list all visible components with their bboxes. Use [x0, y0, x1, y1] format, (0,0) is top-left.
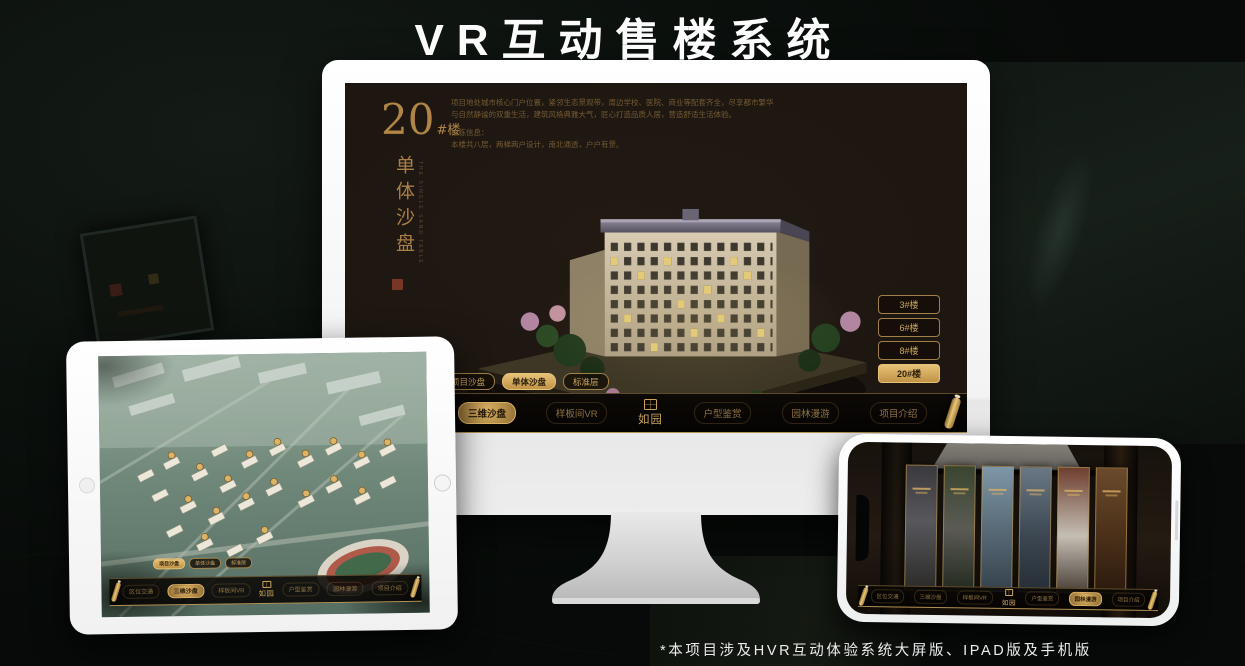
sandbox-tab-group: 项目沙盘 单体沙盘 标准层: [441, 373, 609, 390]
nav-item-project-intro[interactable]: 项目介绍: [371, 581, 408, 596]
phone-side-button: [1175, 500, 1179, 540]
footnote-text: *本项目涉及HVR互动体验系统大屏版、IPAD版及手机版: [660, 639, 1092, 660]
card-label-mark: [916, 492, 928, 494]
gallery-card-row: [904, 465, 1128, 594]
tab-project-sandbox[interactable]: 项目沙盘: [153, 558, 185, 569]
logo-text: 如园: [259, 589, 275, 599]
frame-caption-bar: [117, 305, 163, 317]
nav-item-garden-roam[interactable]: 园林漫游: [782, 402, 839, 423]
nav-item-unit-gallery[interactable]: 户型鉴赏: [282, 582, 319, 597]
card-label-mark: [989, 489, 1007, 491]
nav-item-3d-sandbox[interactable]: 三维沙盘: [914, 590, 948, 604]
tab-single-sandbox[interactable]: 单体沙盘: [189, 558, 221, 569]
card-label-mark: [991, 493, 1003, 495]
vertical-subtitle: THE SINGLE SAND TABLE: [417, 161, 423, 265]
brand-logo: 如园: [259, 581, 275, 600]
tab-standard-floor[interactable]: 标准层: [563, 373, 609, 390]
nav-item-garden-roam[interactable]: 园林漫游: [1068, 592, 1102, 606]
scroll-menu-icon[interactable]: [944, 396, 962, 429]
nav-item-3d-sandbox[interactable]: 三维沙盘: [458, 402, 515, 423]
floor-button-selected[interactable]: 20#楼: [878, 364, 940, 383]
logo-icon: [262, 581, 271, 589]
phone-navbar: 区位交通 三维沙盘 样板间VR 如园 户型鉴赏 园林漫游 项目介绍: [858, 585, 1158, 611]
nav-item-location[interactable]: 区位交通: [870, 590, 904, 604]
nav-item-location[interactable]: 区位交通: [123, 584, 160, 599]
card-label-mark: [1105, 494, 1117, 496]
nav-item-garden-roam[interactable]: 园林漫游: [327, 581, 364, 596]
block-number: 20: [381, 95, 434, 144]
card-label-mark: [1029, 493, 1041, 495]
gallery-card[interactable]: [1056, 467, 1090, 593]
card-label-mark: [1065, 490, 1083, 492]
phone-screen: 区位交通 三维沙盘 样板间VR 如园 户型鉴赏 园林漫游 项目介绍: [846, 442, 1172, 619]
nav-items: 区位交通 三维沙盘 样板间VR 如园 户型鉴赏 园林漫游 项目介绍: [119, 579, 412, 602]
page-title: VR互动售楼系统: [0, 4, 1245, 68]
nav-items: 区位交通 三维沙盘 样板间VR 如园 户型鉴赏 园林漫游 项目介绍: [866, 587, 1150, 609]
floor-button-group: 3#楼 6#楼 8#楼 20#楼: [878, 295, 940, 383]
promo-canvas: VR互动售楼系统 20#楼 单体沙盘 THE SINGLE SAND TABLE…: [0, 0, 1245, 666]
frame-seal-red: [109, 283, 123, 297]
frame-seal-gold: [148, 273, 159, 284]
description-line: 楼栋信息：: [451, 127, 851, 139]
description-line: 与自然静谧的双重生活，建筑风格典雅大气，匠心打造品质人居，营造舒适生活体验。: [451, 109, 851, 121]
vertical-title: 单体沙盘: [391, 155, 418, 259]
nav-item-project-intro[interactable]: 项目介绍: [870, 402, 927, 423]
gallery-card[interactable]: [1018, 466, 1052, 592]
nav-item-3d-sandbox[interactable]: 三维沙盘: [167, 584, 204, 599]
nav-item-showroom-vr[interactable]: 样板间VR: [212, 583, 251, 598]
brand-logo: 如园: [638, 399, 663, 427]
building-description: 项目地处城市核心门户位置，紧邻生态景观带，周边学校、医院、商业等配套齐全，尽享都…: [451, 97, 851, 151]
tablet-navbar: 区位交通 三维沙盘 样板间VR 如园 户型鉴赏 园林漫游 项目介绍: [109, 574, 421, 606]
floor-button[interactable]: 3#楼: [878, 295, 940, 314]
tab-single-sandbox[interactable]: 单体沙盘: [502, 373, 556, 390]
tablet-camera-icon: [79, 477, 95, 493]
nav-item-showroom-vr[interactable]: 样板间VR: [957, 591, 993, 605]
card-label-mark: [954, 492, 966, 494]
gallery-card[interactable]: [980, 466, 1014, 592]
monitor-stand: [541, 512, 771, 612]
gallery-card[interactable]: [942, 465, 976, 591]
card-label-mark: [1067, 494, 1079, 496]
gallery-card[interactable]: [904, 465, 938, 591]
card-label-mark: [913, 488, 931, 490]
card-label-mark: [951, 488, 969, 490]
brand-logo: 如园: [1002, 589, 1017, 607]
phone-device: 区位交通 三维沙盘 样板间VR 如园 户型鉴赏 园林漫游 项目介绍: [837, 434, 1182, 627]
nav-item-unit-gallery[interactable]: 户型鉴赏: [694, 402, 751, 423]
logo-text: 如园: [1002, 597, 1017, 607]
nav-item-project-intro[interactable]: 项目介绍: [1111, 593, 1145, 607]
seal-stamp-icon: [392, 279, 403, 290]
tablet-home-button: [434, 474, 451, 491]
logo-icon: [1005, 589, 1014, 596]
building-block-label: 20#楼: [381, 99, 460, 141]
description-line: 项目地处城市核心门户位置，紧邻生态景观带，周边学校、医院、商业等配套齐全，尽享都…: [451, 97, 851, 109]
tablet-screen: 项目沙盘 单体沙盘 标准层 区位交通 三维沙盘 样板间VR 如园 户型鉴赏: [98, 352, 430, 618]
background-picture-frame: [80, 215, 215, 348]
floor-button[interactable]: 6#楼: [878, 318, 940, 337]
card-label-mark: [1027, 489, 1045, 491]
nav-item-showroom-vr[interactable]: 样板间VR: [546, 402, 607, 423]
tablet-device: 项目沙盘 单体沙盘 标准层 区位交通 三维沙盘 样板间VR 如园 户型鉴赏: [66, 336, 458, 634]
logo-icon: [644, 399, 657, 410]
tablet-bezel: 项目沙盘 单体沙盘 标准层 区位交通 三维沙盘 样板间VR 如园 户型鉴赏: [66, 336, 458, 634]
logo-text: 如园: [638, 411, 663, 427]
tablet-tab-group: 项目沙盘 单体沙盘 标准层: [153, 557, 252, 569]
nav-item-unit-gallery[interactable]: 户型鉴赏: [1025, 592, 1059, 606]
phone-notch: [856, 495, 870, 561]
gallery-card[interactable]: [1094, 467, 1128, 593]
floor-button[interactable]: 8#楼: [878, 341, 940, 360]
description-line: 本楼共八层，两梯两户设计，南北通透，户户有景。: [451, 139, 851, 151]
card-label-mark: [1103, 490, 1121, 492]
tab-standard-floor[interactable]: 标准层: [225, 557, 252, 568]
phone-bezel: 区位交通 三维沙盘 样板间VR 如园 户型鉴赏 园林漫游 项目介绍: [837, 434, 1182, 627]
